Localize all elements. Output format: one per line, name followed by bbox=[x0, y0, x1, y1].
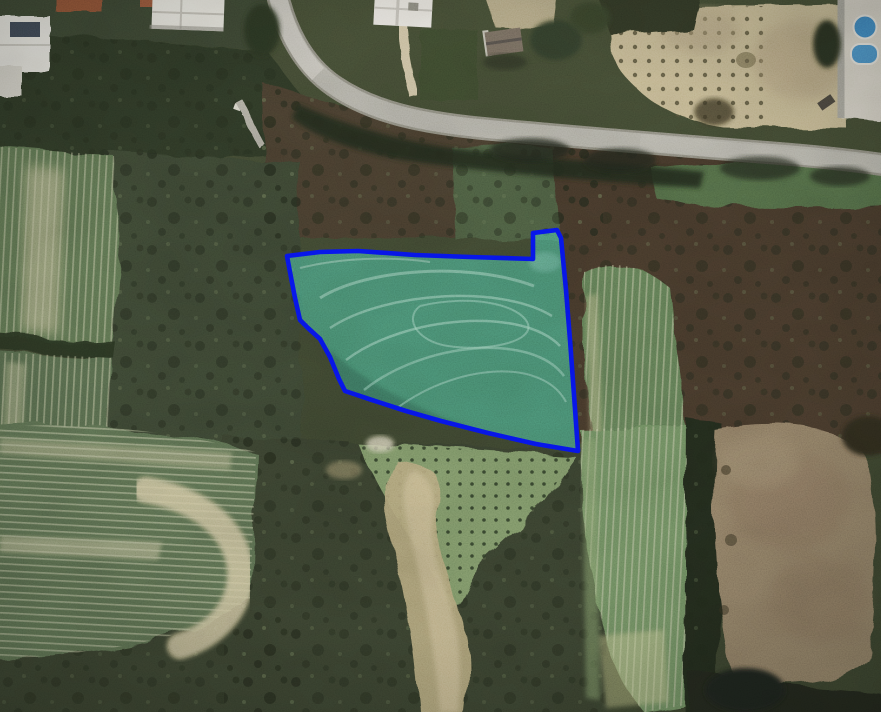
satellite-canvas bbox=[0, 0, 881, 712]
satellite-map[interactable] bbox=[0, 0, 881, 712]
vignette bbox=[0, 0, 881, 712]
